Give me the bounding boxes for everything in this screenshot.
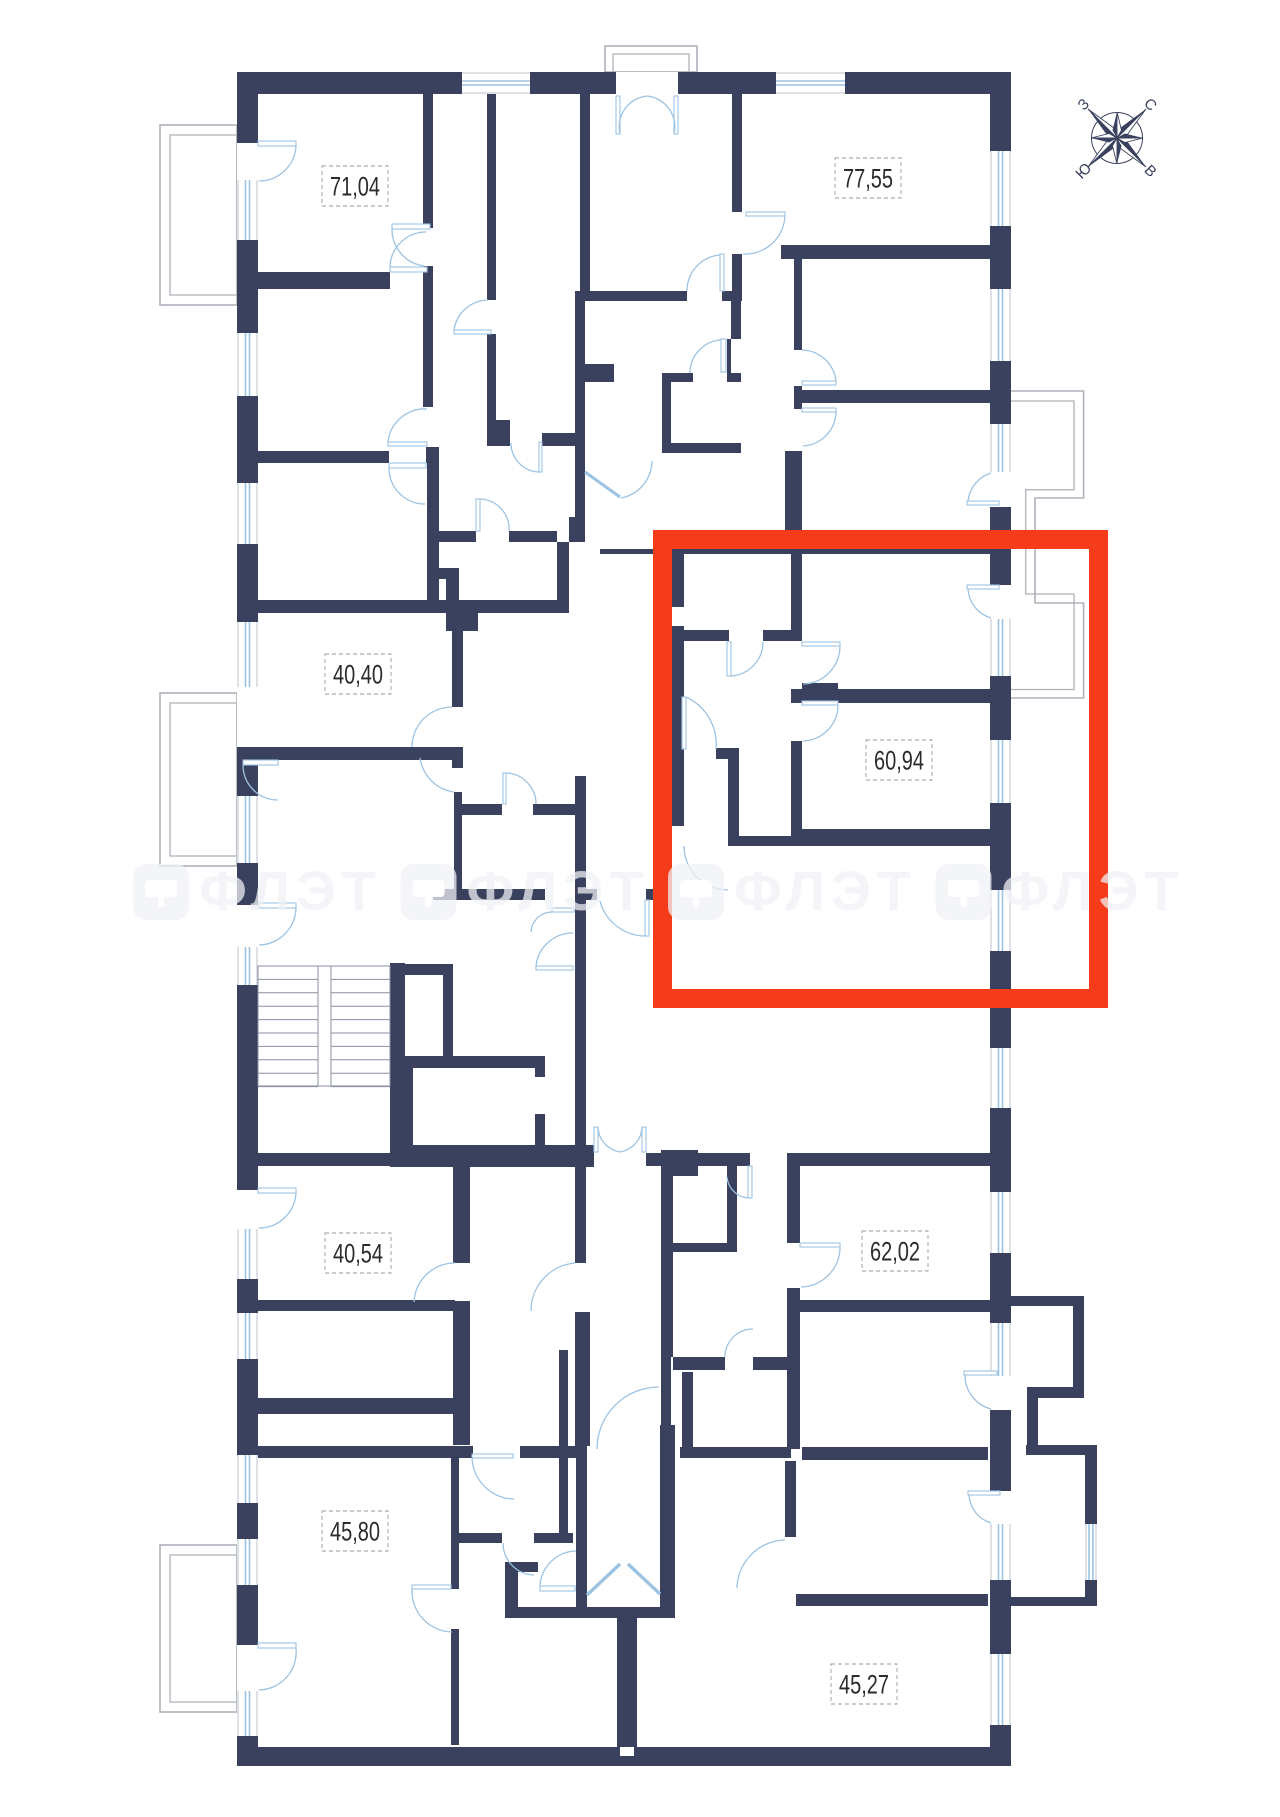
svg-text:45,27: 45,27 <box>839 1670 889 1700</box>
svg-text:ФЛЭТ: ФЛЭТ <box>1002 859 1185 922</box>
svg-text:62,02: 62,02 <box>870 1237 920 1267</box>
svg-text:ФЛЭТ: ФЛЭТ <box>199 859 382 922</box>
svg-text:71,04: 71,04 <box>330 172 380 202</box>
svg-text:40,40: 40,40 <box>333 660 383 690</box>
svg-text:ФЛЭТ: ФЛЭТ <box>734 859 917 922</box>
svg-text:40,54: 40,54 <box>333 1239 383 1269</box>
svg-text:45,80: 45,80 <box>330 1517 380 1547</box>
svg-text:77,55: 77,55 <box>843 164 893 194</box>
svg-text:ФЛЭТ: ФЛЭТ <box>467 859 650 922</box>
svg-text:60,94: 60,94 <box>874 746 924 776</box>
